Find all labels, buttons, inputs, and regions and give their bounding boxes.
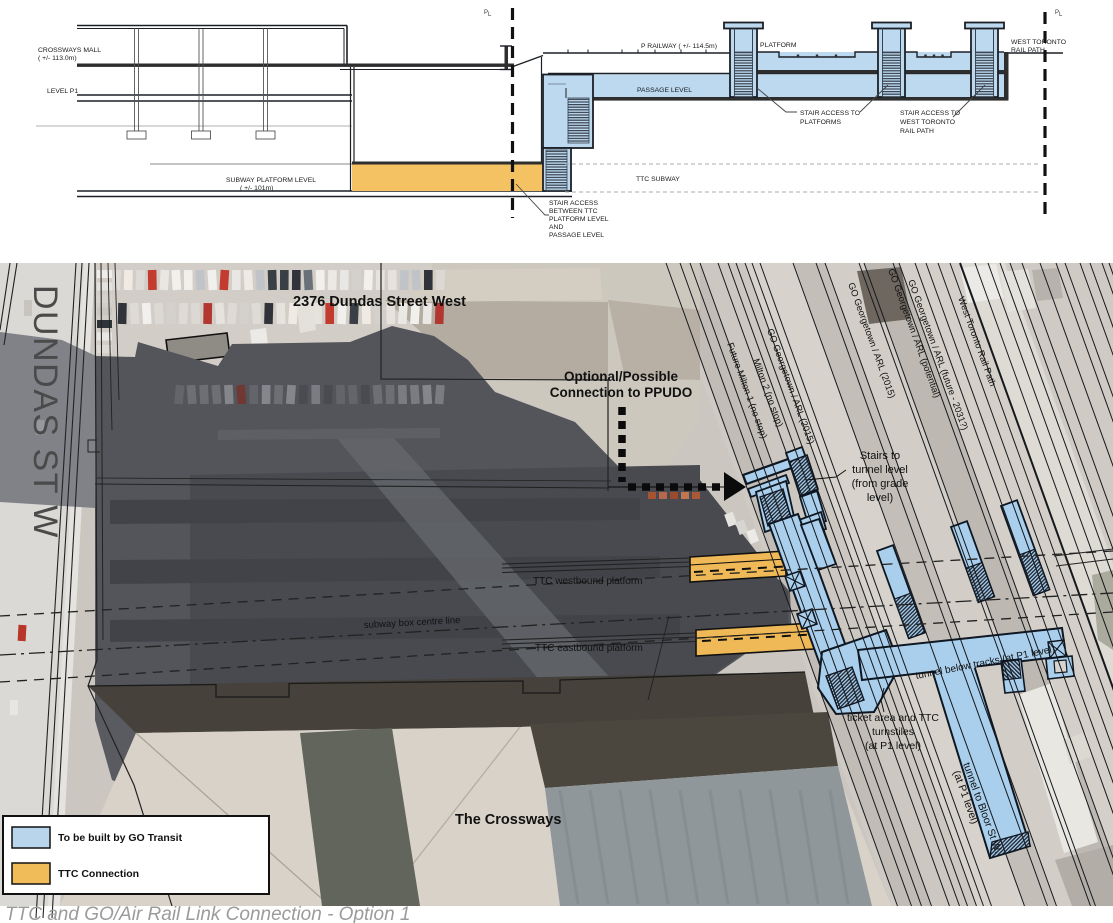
svg-text:SUBWAY PLATFORM LEVEL: SUBWAY PLATFORM LEVEL bbox=[226, 177, 316, 184]
svg-text:STAIR ACCESS TO: STAIR ACCESS TO bbox=[800, 110, 860, 117]
svg-text:Connection to PPUDO: Connection to PPUDO bbox=[550, 385, 693, 400]
svg-text:level): level) bbox=[867, 492, 893, 504]
svg-text:Optional/Possible: Optional/Possible bbox=[564, 369, 679, 384]
svg-text:The Crossways: The Crossways bbox=[455, 812, 561, 828]
svg-text:ticket area and TTC: ticket area and TTC bbox=[847, 712, 939, 724]
svg-text:(at P1 level): (at P1 level) bbox=[865, 740, 921, 752]
svg-text:( +/- 113.0m): ( +/- 113.0m) bbox=[38, 55, 77, 62]
svg-text:tunnel level: tunnel level bbox=[852, 464, 908, 476]
svg-text:WEST TORONTO: WEST TORONTO bbox=[900, 119, 955, 126]
svg-text:(from grade: (from grade bbox=[852, 478, 909, 490]
svg-text:AND: AND bbox=[549, 224, 563, 231]
svg-text:CROSSWAYS MALL: CROSSWAYS MALL bbox=[38, 47, 101, 54]
svg-text:To be built by GO Transit: To be built by GO Transit bbox=[58, 832, 183, 844]
svg-text:STAIR ACCESS: STAIR ACCESS bbox=[549, 200, 598, 207]
svg-text:TTC and GO/Air Rail Link Conne: TTC and GO/Air Rail Link Connection - Op… bbox=[5, 904, 411, 923]
svg-text:PLATFORMS: PLATFORMS bbox=[800, 119, 842, 126]
svg-text:RAIL PATH: RAIL PATH bbox=[1011, 47, 1045, 54]
svg-text:2376 Dundas Street West: 2376 Dundas Street West bbox=[293, 294, 466, 310]
svg-text:DUNDAS ST W: DUNDAS ST W bbox=[26, 285, 64, 539]
svg-text:turnstiles: turnstiles bbox=[872, 726, 914, 738]
svg-text:PASSAGE LEVEL: PASSAGE LEVEL bbox=[549, 232, 604, 239]
svg-text:TTC westbound platform: TTC westbound platform bbox=[533, 576, 643, 587]
svg-text:LEVEL P1: LEVEL P1 bbox=[47, 88, 78, 95]
svg-text:PLATFORM: PLATFORM bbox=[760, 42, 797, 49]
svg-text:TTC SUBWAY: TTC SUBWAY bbox=[636, 176, 680, 183]
svg-text:RAIL PATH: RAIL PATH bbox=[900, 128, 934, 135]
svg-text:Stairs to: Stairs to bbox=[860, 450, 900, 462]
svg-text:TTC eastbound platform: TTC eastbound platform bbox=[535, 643, 643, 654]
svg-text:WEST TORONTO: WEST TORONTO bbox=[1011, 39, 1066, 46]
svg-text:PASSAGE LEVEL: PASSAGE LEVEL bbox=[637, 87, 692, 94]
svg-text:PLATFORM LEVEL: PLATFORM LEVEL bbox=[549, 216, 609, 223]
svg-text:BETWEEN TTC: BETWEEN TTC bbox=[549, 208, 598, 215]
svg-text:TTC Connection: TTC Connection bbox=[58, 868, 139, 880]
svg-text:P RAILWAY ( +/- 114.5m): P RAILWAY ( +/- 114.5m) bbox=[641, 43, 717, 50]
svg-text:( +/- 101m): ( +/- 101m) bbox=[240, 185, 273, 192]
svg-text:STAIR ACCESS TO: STAIR ACCESS TO bbox=[900, 110, 960, 117]
